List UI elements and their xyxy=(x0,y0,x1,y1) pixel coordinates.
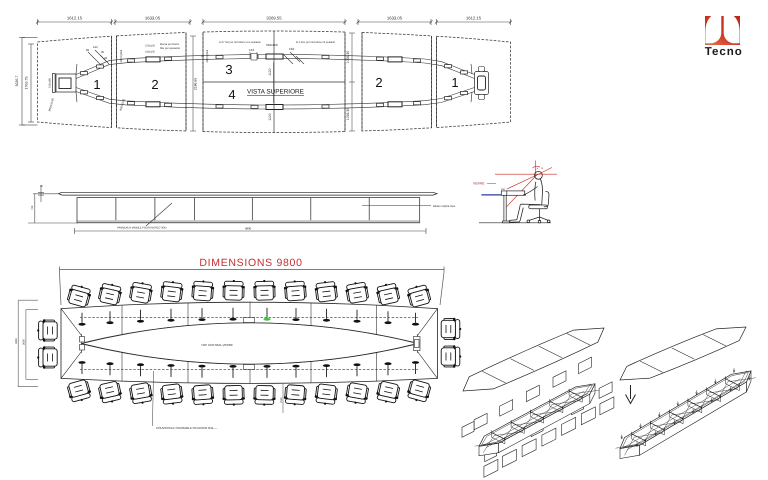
svg-text:1763.75: 1763.75 xyxy=(25,77,29,90)
svg-text:3300: 3300 xyxy=(15,338,18,344)
svg-text:B: B xyxy=(542,167,544,170)
svg-text:(700): (700) xyxy=(280,397,283,403)
svg-text:TOP CENTRAL VERRE: TOP CENTRAL VERRE xyxy=(201,343,233,347)
svg-text:1093.35: 1093.35 xyxy=(346,51,350,63)
svg-text:A: A xyxy=(537,168,539,171)
svg-text:B-1 foro per microfono s/f pul: B-1 foro per microfono s/f pulsanti xyxy=(296,41,335,44)
svg-text:VISTA SUPERIORE: VISTA SUPERIORE xyxy=(247,89,304,96)
svg-text:9800: 9800 xyxy=(245,227,252,231)
svg-text:310x160: 310x160 xyxy=(49,77,52,88)
svg-text:3: 3 xyxy=(225,62,232,77)
svg-text:3269.55: 3269.55 xyxy=(266,16,282,21)
svg-text:720: 720 xyxy=(31,205,34,210)
svg-text:310x150: 310x150 xyxy=(145,51,156,54)
svg-text:1612.15: 1612.15 xyxy=(466,16,482,21)
svg-text:1120: 1120 xyxy=(268,68,272,75)
svg-text:Morsa per fissris: Morsa per fissris xyxy=(160,43,180,46)
svg-text:95: 95 xyxy=(101,50,105,54)
svg-text:2: 2 xyxy=(151,77,158,92)
svg-text:84: 84 xyxy=(86,48,90,52)
svg-text:1120: 1120 xyxy=(268,113,272,120)
svg-text:PANNEAUX MOBILE POUR INSPECTIO: PANNEAUX MOBILE POUR INSPECTION xyxy=(117,226,167,229)
svg-text:43: 43 xyxy=(104,56,108,60)
svg-text:370x150: 370x150 xyxy=(145,45,156,48)
svg-text:310x160: 310x160 xyxy=(266,43,278,47)
svg-text:30: 30 xyxy=(40,185,43,188)
svg-text:08(0/+)504: 08(0/+)504 xyxy=(206,49,209,62)
svg-text:COUVERCLE OUVRABLE FIN ACIER R: COUVERCLE OUVRABLE FIN ACIER RAL.... xyxy=(156,426,218,430)
svg-text:1612.15: 1612.15 xyxy=(67,16,83,21)
svg-text:Tecno: Tecno xyxy=(705,46,742,58)
svg-text:fitte per apoiando: fitte per apoiando xyxy=(160,47,181,50)
svg-text:2186.65: 2186.65 xyxy=(194,78,198,90)
svg-text:BASE LAQUE RAL.: BASE LAQUE RAL. xyxy=(433,205,456,208)
svg-text:08(0/+)504: 08(0/+)504 xyxy=(120,49,123,62)
svg-text:VERRE: VERRE xyxy=(473,182,485,186)
svg-text:A-07 fori per microfono con pu: A-07 fori per microfono con pulsante xyxy=(219,41,261,44)
svg-text:1: 1 xyxy=(93,77,100,92)
svg-text:2600: 2600 xyxy=(23,339,26,345)
svg-text:142: 142 xyxy=(249,48,254,52)
svg-text:R50(120.85: R50(120.85 xyxy=(48,97,55,111)
svg-text:1633.05: 1633.05 xyxy=(145,16,161,21)
svg-text:DIMENSIONS 9800: DIMENSIONS 9800 xyxy=(199,257,302,269)
svg-text:142: 142 xyxy=(93,45,98,49)
svg-text:1093.35: 1093.35 xyxy=(346,108,350,120)
svg-text:1: 1 xyxy=(451,75,458,90)
svg-text:3026.7: 3026.7 xyxy=(15,76,19,87)
svg-text:4: 4 xyxy=(228,87,235,102)
svg-text:1633.05: 1633.05 xyxy=(387,16,403,21)
svg-text:2: 2 xyxy=(375,75,382,90)
svg-text:100: 100 xyxy=(501,188,506,191)
svg-text:192: 192 xyxy=(289,47,294,51)
